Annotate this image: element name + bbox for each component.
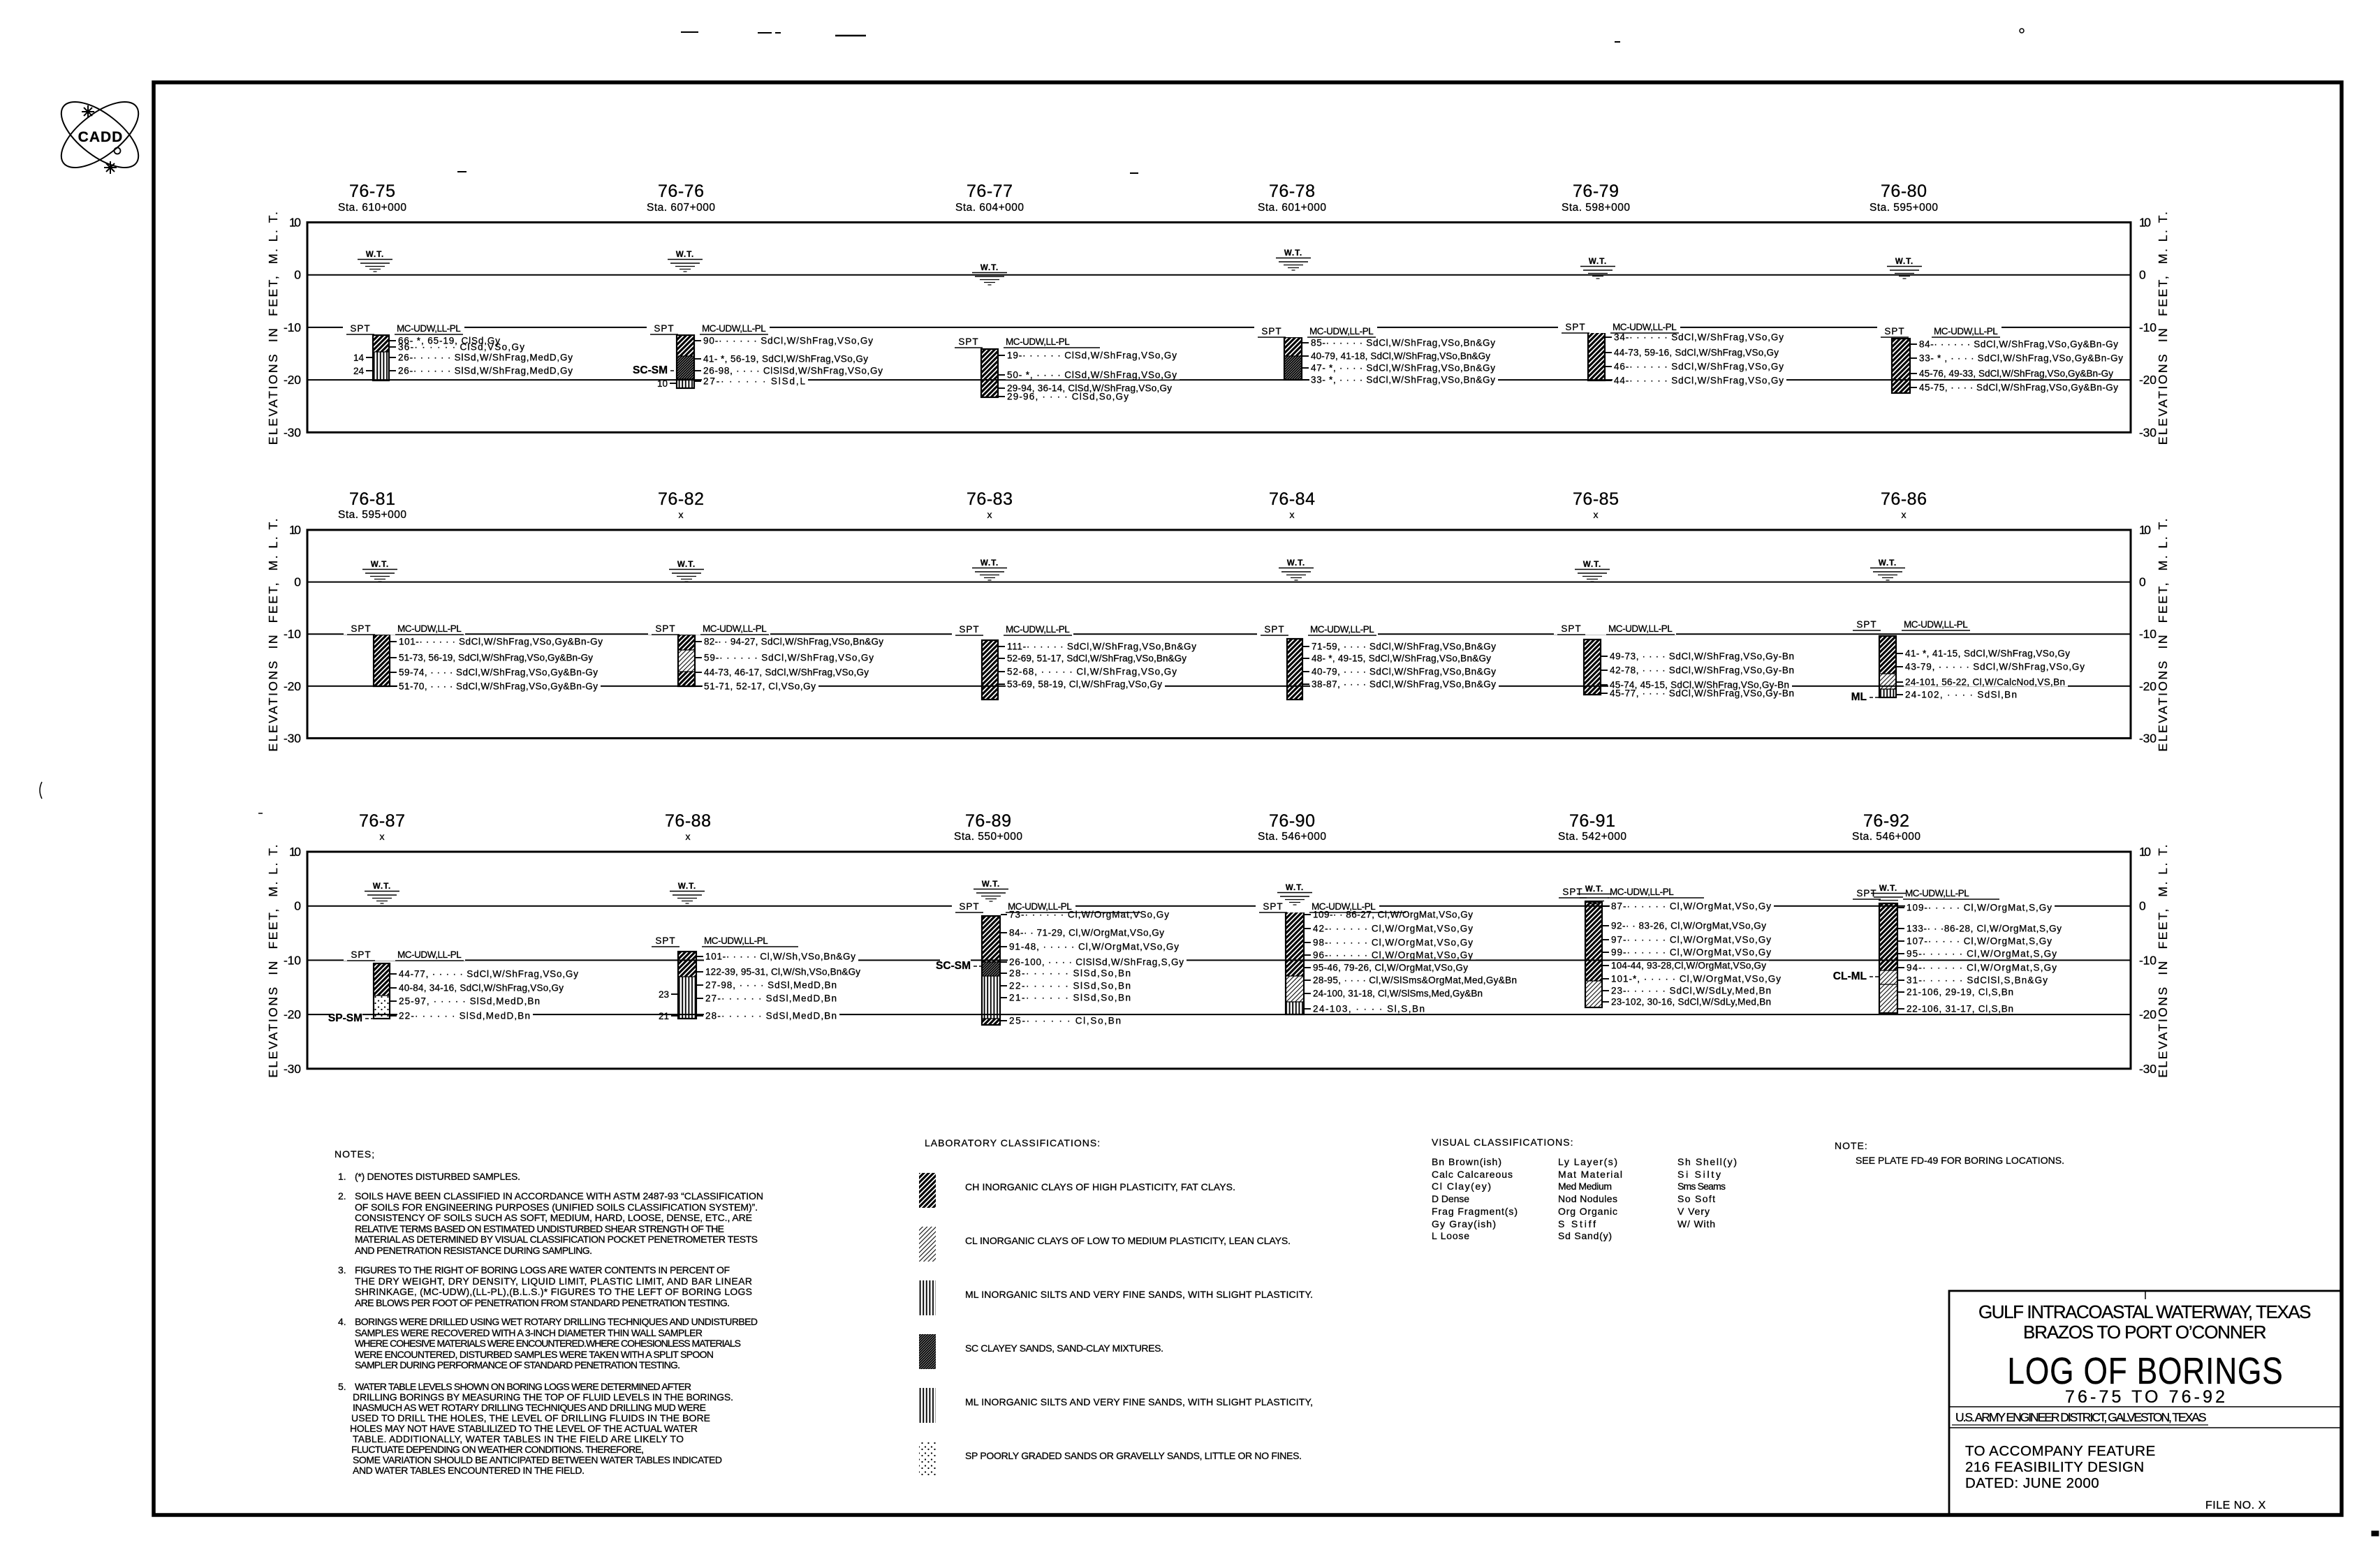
svg-text:W.T.: W.T. bbox=[1287, 559, 1305, 568]
svg-text:W.T.: W.T. bbox=[1589, 258, 1607, 266]
svg-text:TABLE. ADDITIONALLY, WATER TAB: TABLE. ADDITIONALLY, WATER TABLES IN THE… bbox=[353, 1433, 684, 1444]
svg-text:73-· · · · · · Cl,W/OrgMat,VSo: 73-· · · · · · Cl,W/OrgMat,VSo,Gy bbox=[1009, 910, 1169, 920]
svg-text:BRAZOS TO PORT O’CONNER: BRAZOS TO PORT O’CONNER bbox=[2023, 1322, 2268, 1343]
svg-text:Cl Clay(ey): Cl Clay(ey) bbox=[1432, 1181, 1491, 1192]
svg-text:-30: -30 bbox=[284, 731, 301, 745]
svg-text:SPT: SPT bbox=[959, 901, 979, 912]
svg-text:DATED: JUNE 2000: DATED: JUNE 2000 bbox=[1965, 1475, 2099, 1491]
svg-text:Sms Seams: Sms Seams bbox=[1677, 1181, 1726, 1192]
svg-text:84-· · 71-29, Cl,W/OrgMat,VSo,: 84-· · 71-29, Cl,W/OrgMat,VSo,Gy bbox=[1009, 928, 1164, 938]
svg-text:51-70, · · · · SdCl,W/ShFrag,V: 51-70, · · · · SdCl,W/ShFrag,VSo,Gy&Bn-G… bbox=[399, 681, 598, 692]
svg-text:101-*, · · · · · Cl,W/OrgMat,V: 101-*, · · · · · Cl,W/OrgMat,VSo,Gy bbox=[1611, 974, 1781, 984]
svg-text:ELEVATIONS IN FEET, M. L. T: ELEVATIONS IN FEET, M. L. T. bbox=[266, 210, 280, 445]
svg-text:WHERE COHESIVE MATERIALS WERE: WHERE COHESIVE MATERIALS WERE ENCOUNTERE… bbox=[355, 1338, 741, 1349]
svg-text:76-83: 76-83 bbox=[967, 489, 1013, 509]
svg-text:(*) DENOTES DISTURBED SAMPLES.: (*) DENOTES DISTURBED SAMPLES. bbox=[355, 1171, 520, 1182]
svg-text:21: 21 bbox=[659, 1011, 669, 1021]
svg-text:29-96, · · · · ClSd,So,Gy: 29-96, · · · · ClSd,So,Gy bbox=[1007, 392, 1129, 402]
svg-text:59-74, · · · · SdCl,W/ShFrag,V: 59-74, · · · · SdCl,W/ShFrag,VSo,Gy&Bn-G… bbox=[399, 667, 598, 678]
svg-text:76-80: 76-80 bbox=[1881, 182, 1927, 201]
svg-text:111-· · · · · · SdCl,W/ShFrag,: 111-· · · · · · SdCl,W/ShFrag,VSo,Bn&Gy bbox=[1007, 642, 1196, 652]
svg-text:SPT: SPT bbox=[1264, 624, 1284, 635]
svg-text:96-· · · · · · Cl,W/OrgMat,VSo: 96-· · · · · · Cl,W/OrgMat,VSo,Gy bbox=[1313, 950, 1473, 961]
svg-text:14: 14 bbox=[353, 353, 365, 363]
svg-text:W.T.: W.T. bbox=[1284, 249, 1302, 258]
svg-text:DRILLING BORINGS BY MEASURING: DRILLING BORINGS BY MEASURING THE TOP OF… bbox=[353, 1391, 733, 1403]
svg-text:W.T.: W.T. bbox=[373, 882, 391, 891]
svg-text:0: 0 bbox=[2139, 575, 2146, 589]
svg-text:10: 10 bbox=[289, 523, 301, 537]
svg-text:SOME VARIATION SHOULD BE ANTIC: SOME VARIATION SHOULD BE ANTICIPATED BET… bbox=[353, 1454, 722, 1465]
svg-text:76-85: 76-85 bbox=[1573, 489, 1619, 509]
svg-text:MC-UDW,LL-PL: MC-UDW,LL-PL bbox=[397, 623, 462, 634]
svg-text:76-84: 76-84 bbox=[1269, 489, 1315, 509]
svg-text:SPT: SPT bbox=[655, 623, 675, 634]
svg-text:CH INORGANIC CLAYS OF HIGH PLA: CH INORGANIC CLAYS OF HIGH PLASTICITY, F… bbox=[965, 1181, 1235, 1192]
svg-text:-30: -30 bbox=[284, 1062, 301, 1076]
svg-text:-20: -20 bbox=[2139, 373, 2157, 387]
svg-text:44-77, · · · · · SdCl,W/ShFrag: 44-77, · · · · · SdCl,W/ShFrag,VSo,Gy bbox=[399, 969, 578, 980]
svg-text:31-· · · · · · SdClSl,S,Bn&Gy: 31-· · · · · · SdClSl,S,Bn&Gy bbox=[1907, 975, 2048, 986]
svg-text:87-· · · · · · Cl,W/OrgMat,VSo: 87-· · · · · · Cl,W/OrgMat,VSo,Gy bbox=[1611, 901, 1771, 912]
svg-text:MC-UDW,LL-PL: MC-UDW,LL-PL bbox=[397, 323, 461, 334]
svg-text:0: 0 bbox=[294, 575, 301, 589]
svg-text:ML INORGANIC SILTS AND VERY FI: ML INORGANIC SILTS AND VERY FINE SANDS, … bbox=[965, 1289, 1313, 1300]
svg-text:Sta. 550+000: Sta. 550+000 bbox=[954, 831, 1022, 843]
svg-text:-30: -30 bbox=[2139, 731, 2157, 745]
svg-text:SPT: SPT bbox=[655, 936, 675, 946]
svg-text:MATERIAL AS DETERMINED BY VISU: MATERIAL AS DETERMINED BY VISUAL CLASSIF… bbox=[355, 1234, 758, 1245]
svg-text:SPT: SPT bbox=[958, 337, 978, 347]
svg-text:NOTES;: NOTES; bbox=[335, 1148, 375, 1160]
svg-text:45-76, 49-33, SdCl,W/ShFrag,VS: 45-76, 49-33, SdCl,W/ShFrag,VSo,Gy&Bn-Gy bbox=[1919, 369, 2113, 379]
svg-text:SPT: SPT bbox=[1884, 326, 1904, 337]
svg-text:SHRINKAGE, (MC-UDW),(LL-PL),(B: SHRINKAGE, (MC-UDW),(LL-PL),(B.L.S.)* FI… bbox=[355, 1286, 752, 1297]
svg-text:76-82: 76-82 bbox=[658, 489, 704, 509]
svg-text:41- *, 56-19, SdCl,W/ShFrag,VS: 41- *, 56-19, SdCl,W/ShFrag,VSo,Gy bbox=[703, 354, 868, 364]
svg-text:19-· · · · · · ClSd,W/ShFrag,V: 19-· · · · · · ClSd,W/ShFrag,VSo,Gy bbox=[1007, 350, 1177, 361]
svg-text:0: 0 bbox=[294, 268, 301, 282]
svg-text:23-· · · · · · SdCl,W/SdLy,Med: 23-· · · · · · SdCl,W/SdLy,Med,Bn bbox=[1611, 986, 1771, 996]
svg-text:Frag Fragment(s): Frag Fragment(s) bbox=[1432, 1206, 1518, 1217]
svg-text:So Soft: So Soft bbox=[1677, 1193, 1715, 1204]
svg-text:U.S. ARMY ENGINEER DISTRICT, G: U.S. ARMY ENGINEER DISTRICT, GALVESTON, … bbox=[1955, 1410, 2207, 1424]
svg-text:SAMPLES WERE RECOVERED WITH A: SAMPLES WERE RECOVERED WITH A 3-INCH DIA… bbox=[355, 1327, 703, 1338]
svg-text:51-71, 52-17, Cl,VSo,Gy: 51-71, 52-17, Cl,VSo,Gy bbox=[704, 681, 816, 692]
svg-text:26-· · · · · · SlSd,W/ShFrag,M: 26-· · · · · · SlSd,W/ShFrag,MedD,Gy bbox=[398, 353, 573, 363]
svg-text:109-· · · · · Cl,W/OrgMat,S,Gy: 109-· · · · · Cl,W/OrgMat,S,Gy bbox=[1907, 903, 2052, 913]
svg-text:WATER TABLE LEVELS SHOWN ON BO: WATER TABLE LEVELS SHOWN ON BORING LOGS … bbox=[355, 1381, 691, 1392]
svg-text:WERE ENCOUNTERED, DISTURBED SA: WERE ENCOUNTERED, DISTURBED SAMPLES WERE… bbox=[355, 1349, 714, 1360]
svg-text:SC-SM: SC-SM bbox=[936, 960, 971, 972]
svg-text:36-· · · · · · ClSd,VSo,Gy: 36-· · · · · · ClSd,VSo,Gy bbox=[398, 342, 524, 353]
svg-text:22-· · · · · · SlSd,So,Bn: 22-· · · · · · SlSd,So,Bn bbox=[1009, 981, 1131, 991]
svg-text:SPT: SPT bbox=[654, 323, 674, 334]
svg-text:x: x bbox=[679, 509, 684, 520]
svg-text:10: 10 bbox=[289, 216, 301, 230]
svg-text:52-68, · · · · · Cl,W/ShFrag,V: 52-68, · · · · · Cl,W/ShFrag,VSo,Gy bbox=[1007, 667, 1177, 677]
svg-text:41- *, 41-15, SdCl,W/ShFrag,VS: 41- *, 41-15, SdCl,W/ShFrag,VSo,Gy bbox=[1905, 649, 2070, 659]
svg-text:76-79: 76-79 bbox=[1573, 182, 1619, 201]
svg-text:-20: -20 bbox=[2139, 679, 2157, 693]
svg-text:21-· · · · · · SlSd,So,Bn: 21-· · · · · · SlSd,So,Bn bbox=[1009, 993, 1131, 1003]
svg-text:MC-UDW,LL-PL: MC-UDW,LL-PL bbox=[1608, 623, 1673, 634]
svg-text:-10: -10 bbox=[284, 627, 301, 641]
svg-text:x: x bbox=[1902, 509, 1907, 520]
svg-text:33- * , · · · · SdCl,W/ShFrag,: 33- * , · · · · SdCl,W/ShFrag,VSo,Gy&Bn-… bbox=[1919, 353, 2123, 364]
svg-text:SAMPLER DURING PERFORMANCE OF: SAMPLER DURING PERFORMANCE OF STANDARD P… bbox=[355, 1359, 680, 1370]
svg-text:D Dense: D Dense bbox=[1432, 1193, 1469, 1204]
svg-text:0: 0 bbox=[2139, 268, 2146, 282]
svg-text:THE DRY WEIGHT, DRY DENSITY, L: THE DRY WEIGHT, DRY DENSITY, LIQUID LIMI… bbox=[355, 1276, 752, 1287]
svg-text:MC-UDW,LL-PL: MC-UDW,LL-PL bbox=[1310, 624, 1374, 635]
svg-text:Sta. 546+000: Sta. 546+000 bbox=[1258, 831, 1326, 843]
svg-text:MC-UDW,LL-PL: MC-UDW,LL-PL bbox=[1934, 326, 1998, 337]
svg-text:W.T.: W.T. bbox=[1895, 258, 1913, 266]
svg-text:10: 10 bbox=[2139, 523, 2151, 537]
svg-text:W.T.: W.T. bbox=[982, 880, 1000, 889]
svg-text:SPT: SPT bbox=[351, 949, 371, 960]
svg-text:24-101, 56-22, Cl,W/CalcNod,VS: 24-101, 56-22, Cl,W/CalcNod,VS,Bn bbox=[1905, 677, 2065, 688]
svg-text:76-87: 76-87 bbox=[359, 811, 405, 831]
svg-text:Sta. 595+000: Sta. 595+000 bbox=[1870, 202, 1938, 214]
svg-text:-20: -20 bbox=[284, 679, 301, 693]
svg-text:ELEVATIONS IN FEET, M. L. T: ELEVATIONS IN FEET, M. L. T. bbox=[2156, 843, 2170, 1078]
svg-text:33- *, · · · · SdCl,W/ShFrag,V: 33- *, · · · · SdCl,W/ShFrag,VSo,Bn&Gy bbox=[1311, 375, 1495, 385]
svg-text:W.T.: W.T. bbox=[1286, 884, 1304, 892]
svg-text:W.T.: W.T. bbox=[980, 559, 999, 568]
svg-text:23-102, 30-16, SdCl,W/SdLy,Med: 23-102, 30-16, SdCl,W/SdLy,Med,Bn bbox=[1611, 997, 1771, 1007]
svg-text:-10: -10 bbox=[284, 953, 301, 967]
svg-text:W.T.: W.T. bbox=[1879, 559, 1897, 568]
svg-text:x: x bbox=[987, 509, 992, 520]
svg-text:22-· · · · · · SlSd,MedD,Bn: 22-· · · · · · SlSd,MedD,Bn bbox=[399, 1011, 530, 1021]
svg-text:94-· · · · · · Cl,W/OrgMat,S,G: 94-· · · · · · Cl,W/OrgMat,S,Gy bbox=[1907, 963, 2057, 973]
svg-text:76-89: 76-89 bbox=[965, 811, 1011, 831]
svg-text:CONSISTENCY OF SOILS SUCH AS S: CONSISTENCY OF SOILS SUCH AS SOFT, MEDIU… bbox=[355, 1212, 752, 1223]
svg-text:SOILS HAVE BEEN CLASSIFIED IN: SOILS HAVE BEEN CLASSIFIED IN ACCORDANCE… bbox=[355, 1190, 763, 1202]
svg-text:x: x bbox=[380, 831, 385, 842]
svg-text:76-90: 76-90 bbox=[1269, 811, 1315, 831]
svg-text:104-44, 93-28,Cl,W/OrgMat,VSo,: 104-44, 93-28,Cl,W/OrgMat,VSo,Gy bbox=[1611, 961, 1766, 971]
svg-text:21-106, 29-19, Cl,S,Bn: 21-106, 29-19, Cl,S,Bn bbox=[1907, 987, 2013, 998]
svg-text:W.T.: W.T. bbox=[366, 251, 384, 259]
svg-text:ARE BLOWS PER FOOT OF PENETRAT: ARE BLOWS PER FOOT OF PENETRATION FROM S… bbox=[355, 1297, 730, 1308]
svg-text:SC CLAYEY SANDS, SAND-CLAY MIX: SC CLAYEY SANDS, SAND-CLAY MIXTURES. bbox=[965, 1343, 1163, 1354]
svg-text:RELATIVE TERMS BASED ON ESTIMA: RELATIVE TERMS BASED ON ESTIMATED UNDIST… bbox=[355, 1223, 724, 1234]
svg-text:Bn Brown(ish): Bn Brown(ish) bbox=[1432, 1156, 1501, 1167]
svg-text:Sta. 607+000: Sta. 607+000 bbox=[647, 202, 715, 214]
svg-text:-30: -30 bbox=[2139, 1062, 2157, 1076]
svg-text:10: 10 bbox=[657, 378, 668, 389]
svg-text:Sd Sand(y): Sd Sand(y) bbox=[1558, 1230, 1612, 1241]
svg-text:Nod Nodules: Nod Nodules bbox=[1558, 1193, 1617, 1204]
svg-text:122-39, 95-31, Cl,W/Sh,VSo,Bn&: 122-39, 95-31, Cl,W/Sh,VSo,Bn&Gy bbox=[705, 967, 860, 977]
svg-text:53-69, 58-19, Cl,W/ShFrag,VSo,: 53-69, 58-19, Cl,W/ShFrag,VSo,Gy bbox=[1007, 679, 1162, 690]
svg-text:0: 0 bbox=[294, 899, 301, 913]
svg-text:Sh Shell(y): Sh Shell(y) bbox=[1677, 1156, 1737, 1167]
svg-text:27-· · · · · · SdSl,MedD,Bn: 27-· · · · · · SdSl,MedD,Bn bbox=[705, 993, 837, 1004]
svg-text:2.: 2. bbox=[338, 1190, 346, 1202]
svg-text:W.T.: W.T. bbox=[676, 251, 694, 259]
svg-text:VISUAL CLASSIFICATIONS:: VISUAL CLASSIFICATIONS: bbox=[1432, 1137, 1574, 1148]
svg-text:76-77: 76-77 bbox=[967, 182, 1013, 201]
svg-text:ML: ML bbox=[1851, 691, 1867, 703]
svg-text:-10: -10 bbox=[2139, 320, 2157, 334]
svg-text:109-· · 86-27, Cl,W/OrgMat,VSo: 109-· · 86-27, Cl,W/OrgMat,VSo,Gy bbox=[1313, 910, 1473, 920]
svg-text:42-· · · · · · Cl,W/OrgMat,VSo: 42-· · · · · · Cl,W/OrgMat,VSo,Gy bbox=[1313, 924, 1473, 934]
svg-text:26-· · · · · · SlSd,W/ShFrag,M: 26-· · · · · · SlSd,W/ShFrag,MedD,Gy bbox=[398, 366, 573, 376]
svg-text:MC-UDW,LL-PL: MC-UDW,LL-PL bbox=[1309, 326, 1374, 337]
svg-text:107-· · · · · Cl,W/OrgMat,S,Gy: 107-· · · · · Cl,W/OrgMat,S,Gy bbox=[1907, 936, 2052, 947]
svg-text:Sta. 601+000: Sta. 601+000 bbox=[1258, 202, 1326, 214]
svg-text:W.T.: W.T. bbox=[980, 264, 999, 272]
svg-text:42-78, · · · · SdCl,W/ShFrag,V: 42-78, · · · · SdCl,W/ShFrag,VSo,Gy-Bn bbox=[1610, 665, 1794, 676]
svg-text:GULF INTRACOASTAL WATERWAY, TE: GULF INTRACOASTAL WATERWAY, TEXAS bbox=[1978, 1301, 2312, 1322]
svg-text:MC-UDW,LL-PL: MC-UDW,LL-PL bbox=[1610, 887, 1674, 897]
svg-text:INASMUCH AS WET ROTARY DRILLIN: INASMUCH AS WET ROTARY DRILLING TECHNIQU… bbox=[353, 1402, 706, 1413]
svg-text:45-75, · · · · SdCl,W/ShFrag,V: 45-75, · · · · SdCl,W/ShFrag,VSo,Gy&Bn-G… bbox=[1919, 383, 2118, 393]
svg-text:76-76: 76-76 bbox=[658, 182, 704, 201]
svg-text:-20: -20 bbox=[2139, 1007, 2157, 1021]
svg-text:MC-UDW,LL-PL: MC-UDW,LL-PL bbox=[704, 936, 768, 946]
svg-text:45-77, · · · · SdCl,W/ShFrag,V: 45-77, · · · · SdCl,W/ShFrag,VSo,Gy-Bn bbox=[1610, 688, 1794, 699]
svg-text:SPT: SPT bbox=[1562, 887, 1582, 897]
svg-text:x: x bbox=[1290, 509, 1295, 520]
svg-text:TO ACCOMPANY FEATURE: TO ACCOMPANY FEATURE bbox=[1965, 1443, 2156, 1459]
svg-text:76-92: 76-92 bbox=[1863, 811, 1909, 831]
svg-text:101-· · · · · Cl,W/Sh,VSo,Bn&G: 101-· · · · · Cl,W/Sh,VSo,Bn&Gy bbox=[705, 952, 855, 962]
svg-text:-10: -10 bbox=[2139, 953, 2157, 967]
svg-text:W.T.: W.T. bbox=[371, 561, 389, 569]
svg-text:HOLES MAY NOT HAVE STABLILIZED: HOLES MAY NOT HAVE STABLILIZED TO THE LE… bbox=[350, 1423, 698, 1434]
svg-text:MC-UDW,LL-PL: MC-UDW,LL-PL bbox=[703, 623, 767, 634]
svg-text:49-73, · · · · SdCl,W/ShFrag,V: 49-73, · · · · SdCl,W/ShFrag,VSo,Gy-Bn bbox=[1610, 651, 1794, 662]
svg-text:Med Medium: Med Medium bbox=[1558, 1181, 1612, 1192]
svg-text:46-· · · · · · SdCl,W/ShFrag,V: 46-· · · · · · SdCl,W/ShFrag,VSo,Gy bbox=[1614, 362, 1784, 372]
svg-text:-30: -30 bbox=[2139, 425, 2157, 439]
svg-text:26-100, · · · · ClSlSd,W/ShFra: 26-100, · · · · ClSlSd,W/ShFrag,S,Gy bbox=[1009, 957, 1184, 968]
svg-text:MC-UDW,LL-PL: MC-UDW,LL-PL bbox=[397, 949, 462, 960]
svg-text:3.: 3. bbox=[338, 1264, 346, 1276]
svg-text:-20: -20 bbox=[284, 1007, 301, 1021]
svg-text:SPT: SPT bbox=[1263, 901, 1283, 912]
svg-text:AND PENETRATION RESISTANCE DUR: AND PENETRATION RESISTANCE DURING SAMPLI… bbox=[355, 1245, 592, 1256]
svg-text:LOG OF BORINGS: LOG OF BORINGS bbox=[2007, 1350, 2283, 1392]
svg-text:Calc Calcareous: Calc Calcareous bbox=[1432, 1169, 1513, 1180]
svg-text:95-· · · · · · Cl,W/OrgMat,S,G: 95-· · · · · · Cl,W/OrgMat,S,Gy bbox=[1907, 949, 2057, 959]
svg-text:43-79, · · · · · SdCl,W/ShFrag: 43-79, · · · · · SdCl,W/ShFrag,VSo,Gy bbox=[1905, 662, 2085, 672]
svg-text:76-86: 76-86 bbox=[1881, 489, 1927, 509]
svg-text:SP-SM: SP-SM bbox=[328, 1012, 362, 1024]
svg-text:ML INORGANIC SILTS AND VERY FI: ML INORGANIC SILTS AND VERY FINE SANDS, … bbox=[965, 1396, 1313, 1407]
svg-text:23: 23 bbox=[659, 989, 669, 1000]
svg-text:133-· · ·86-28, Cl,W/OrgMat,S,: 133-· · ·86-28, Cl,W/OrgMat,S,Gy bbox=[1907, 924, 2062, 934]
svg-text:40-79, · · · · SdCl,W/ShFrag,V: 40-79, · · · · SdCl,W/ShFrag,VSo,Bn&Gy bbox=[1312, 667, 1496, 677]
svg-text:10: 10 bbox=[289, 845, 301, 859]
svg-text:MC-UDW,LL-PL: MC-UDW,LL-PL bbox=[1904, 619, 1968, 630]
svg-text:98-· · · · · · Cl,W/OrgMat,VSo: 98-· · · · · · Cl,W/OrgMat,VSo,Gy bbox=[1313, 938, 1473, 948]
svg-text:W.T.: W.T. bbox=[677, 561, 696, 569]
svg-text:Sta. 598+000: Sta. 598+000 bbox=[1562, 202, 1630, 214]
svg-text:Sta. 604+000: Sta. 604+000 bbox=[955, 202, 1024, 214]
svg-text:S Stiff: S Stiff bbox=[1558, 1218, 1596, 1229]
svg-text:71-59, · · · · SdCl,W/ShFrag,V: 71-59, · · · · SdCl,W/ShFrag,VSo,Bn&Gy bbox=[1312, 642, 1496, 652]
svg-text:L Loose: L Loose bbox=[1432, 1230, 1469, 1241]
svg-text:Sta. 610+000: Sta. 610+000 bbox=[338, 202, 406, 214]
svg-text:51-73, 56-19, SdCl,W/ShFrag,VS: 51-73, 56-19, SdCl,W/ShFrag,VSo,Gy&Bn-Gy bbox=[399, 653, 593, 663]
svg-text:28-95, · · · · Cl,W/SlSms&OrgM: 28-95, · · · · Cl,W/SlSms&OrgMat,Med,Gy&… bbox=[1313, 975, 1517, 986]
svg-text:99-· · · · · · Cl,W/OrgMat,VSo: 99-· · · · · · Cl,W/OrgMat,VSo,Gy bbox=[1611, 947, 1771, 958]
svg-text:SPT: SPT bbox=[959, 624, 979, 635]
svg-text:BORINGS WERE DRILLED USING WET: BORINGS WERE DRILLED USING WET ROTARY DR… bbox=[355, 1316, 758, 1327]
svg-text:76-88: 76-88 bbox=[665, 811, 711, 831]
svg-text:-10: -10 bbox=[2139, 627, 2157, 641]
svg-text:CL INORGANIC CLAYS OF LOW TO M: CL INORGANIC CLAYS OF LOW TO MEDIUM PLAS… bbox=[965, 1235, 1291, 1246]
svg-text:85-· · · · · · SdCl,W/ShFrag,V: 85-· · · · · · SdCl,W/ShFrag,VSo,Bn&Gy bbox=[1311, 338, 1495, 348]
svg-text:76-75: 76-75 bbox=[349, 182, 395, 201]
svg-text:27-· · · · · · SlSd,L: 27-· · · · · · SlSd,L bbox=[703, 376, 805, 387]
svg-text:SPT: SPT bbox=[351, 623, 371, 634]
svg-text:LABORATORY CLASSIFICATIONS:: LABORATORY CLASSIFICATIONS: bbox=[925, 1137, 1101, 1148]
svg-text:47- *, · · · · SdCl,W/ShFrag,V: 47- *, · · · · SdCl,W/ShFrag,VSo,Bn&Gy bbox=[1311, 363, 1495, 374]
svg-text:Sta. 595+000: Sta. 595+000 bbox=[338, 509, 406, 521]
svg-text:24: 24 bbox=[353, 366, 365, 376]
svg-text:-10: -10 bbox=[284, 320, 301, 334]
svg-text:95-46, 79-26, Cl,W/OrgMat,VSo,: 95-46, 79-26, Cl,W/OrgMat,VSo,Gy bbox=[1313, 963, 1468, 973]
svg-text:59-· · · · · · SdCl,W/ShFrag,V: 59-· · · · · · SdCl,W/ShFrag,VSo,Gy bbox=[704, 653, 874, 663]
svg-text:48- *, 49-15, SdCl,W/ShFrag,VS: 48- *, 49-15, SdCl,W/ShFrag,VSo,Bn&Gy bbox=[1312, 653, 1491, 664]
svg-text:22-106, 31-17, Cl,S,Bn: 22-106, 31-17, Cl,S,Bn bbox=[1907, 1004, 2013, 1014]
svg-text:ELEVATIONS IN FEET, M. L. T: ELEVATIONS IN FEET, M. L. T. bbox=[266, 843, 280, 1078]
svg-text:-20: -20 bbox=[284, 373, 301, 387]
svg-text:W.T.: W.T. bbox=[1585, 885, 1603, 894]
svg-text:SPT: SPT bbox=[1856, 619, 1876, 630]
svg-text:Org Organic: Org Organic bbox=[1558, 1206, 1617, 1217]
svg-text:W.T.: W.T. bbox=[678, 882, 696, 891]
svg-text:40-79, 41-18, SdCl,W/ShFrag,VS: 40-79, 41-18, SdCl,W/ShFrag,VSo,Bn&Gy bbox=[1311, 351, 1490, 362]
svg-text:28-· · · · · · SdSl,MedD,Bn: 28-· · · · · · SdSl,MedD,Bn bbox=[705, 1011, 837, 1021]
svg-text:SPT: SPT bbox=[1261, 326, 1281, 337]
svg-text:ELEVATIONS IN FEET, M. L. T: ELEVATIONS IN FEET, M. L. T. bbox=[266, 517, 280, 751]
svg-text:92-· · 83-26, Cl,W/OrgMat,VSo,: 92-· · 83-26, Cl,W/OrgMat,VSo,Gy bbox=[1611, 921, 1766, 931]
svg-text:1.: 1. bbox=[338, 1171, 346, 1182]
svg-text:FIGURES TO THE RIGHT OF BORING: FIGURES TO THE RIGHT OF BORING LOGS ARE … bbox=[355, 1264, 730, 1276]
svg-text:76-78: 76-78 bbox=[1269, 182, 1315, 201]
svg-text:MC-UDW,LL-PL: MC-UDW,LL-PL bbox=[1006, 624, 1070, 635]
svg-text:CADD: CADD bbox=[78, 129, 124, 145]
svg-text:MC-UDW,LL-PL: MC-UDW,LL-PL bbox=[702, 323, 766, 334]
svg-text:FILE NO. X: FILE NO. X bbox=[2205, 1500, 2266, 1511]
svg-text:44-· · · · · · SdCl,W/ShFrag,V: 44-· · · · · · SdCl,W/ShFrag,VSo,Gy bbox=[1614, 376, 1784, 386]
svg-text:97-· · · · · · Cl,W/OrgMat,VSo: 97-· · · · · · Cl,W/OrgMat,VSo,Gy bbox=[1611, 935, 1771, 945]
svg-text:44-73, 59-16, SdCl,W/ShFrag,VS: 44-73, 59-16, SdCl,W/ShFrag,VSo,Gy bbox=[1614, 348, 1779, 358]
svg-text:SEE PLATE FD-49 FOR BORING LOC: SEE PLATE FD-49 FOR BORING LOCATIONS. bbox=[1856, 1155, 2064, 1166]
svg-text:x: x bbox=[1594, 509, 1599, 520]
svg-text:OF SOILS FOR ENGINEERING PURPO: OF SOILS FOR ENGINEERING PURPOSES (UNIFI… bbox=[355, 1202, 758, 1213]
svg-text:SC-SM: SC-SM bbox=[633, 364, 668, 376]
svg-text:W.T.: W.T. bbox=[1583, 561, 1601, 569]
svg-text:0: 0 bbox=[2139, 899, 2146, 913]
svg-text:Ly Layer(s): Ly Layer(s) bbox=[1558, 1156, 1617, 1167]
svg-text:25-· · · · · · Cl,So,Bn: 25-· · · · · · Cl,So,Bn bbox=[1009, 1016, 1121, 1026]
svg-text:ELEVATIONS IN FEET, M. L. T: ELEVATIONS IN FEET, M. L. T. bbox=[2156, 210, 2170, 445]
svg-text:SPT: SPT bbox=[350, 323, 370, 334]
svg-text:101-· · · · · · SdCl,W/ShFrag,: 101-· · · · · · SdCl,W/ShFrag,VSo,Gy&Bn-… bbox=[399, 637, 603, 647]
svg-text:26-98, · · · · ClSlSd,W/ShFrag: 26-98, · · · · ClSlSd,W/ShFrag,VSo,Gy bbox=[703, 366, 883, 376]
svg-text:W/ With: W/ With bbox=[1677, 1218, 1715, 1229]
svg-text:34-· · · · · · SdCl,W/ShFrag,V: 34-· · · · · · SdCl,W/ShFrag,VSo,Gy bbox=[1614, 332, 1784, 343]
svg-text:4.: 4. bbox=[338, 1316, 346, 1327]
svg-text:Mat Material: Mat Material bbox=[1558, 1169, 1622, 1180]
svg-text:24-100, 31-18, Cl,W/SlSms,Med,: 24-100, 31-18, Cl,W/SlSms,Med,Gy&Bn bbox=[1313, 989, 1483, 999]
svg-text:V Very: V Very bbox=[1677, 1206, 1710, 1217]
svg-text:28-· · · · · · SlSd,So,Bn: 28-· · · · · · SlSd,So,Bn bbox=[1009, 968, 1131, 979]
svg-text:x: x bbox=[686, 831, 691, 842]
svg-text:90-· · · · · · SdCl,W/ShFrag,V: 90-· · · · · · SdCl,W/ShFrag,VSo,Gy bbox=[703, 336, 873, 346]
svg-text:24-103, · · · · Sl,S,Bn: 24-103, · · · · Sl,S,Bn bbox=[1313, 1004, 1425, 1014]
svg-text:-30: -30 bbox=[284, 425, 301, 439]
svg-text:5.: 5. bbox=[338, 1381, 346, 1392]
svg-text:NOTE:: NOTE: bbox=[1835, 1140, 1868, 1151]
svg-text:50- *, · · · · ClSd,W/ShFrag,V: 50- *, · · · · ClSd,W/ShFrag,VSo,Gy bbox=[1007, 370, 1177, 380]
svg-text:38-87, · · · · SdCl,W/ShFrag,V: 38-87, · · · · SdCl,W/ShFrag,VSo,Bn&Gy bbox=[1312, 679, 1496, 690]
svg-text:Gy Gray(ish): Gy Gray(ish) bbox=[1432, 1218, 1496, 1229]
svg-text:ELEVATIONS IN FEET, M. L. T: ELEVATIONS IN FEET, M. L. T. bbox=[2156, 517, 2170, 751]
svg-text:40-84, 34-16, SdCl,W/ShFrag,VS: 40-84, 34-16, SdCl,W/ShFrag,VSo,Gy bbox=[399, 983, 564, 993]
svg-text:MC-UDW,LL-PL: MC-UDW,LL-PL bbox=[1905, 888, 1969, 899]
svg-text:10: 10 bbox=[2139, 216, 2151, 230]
svg-text:27-98, · · · · SdSl,MedD,Bn: 27-98, · · · · SdSl,MedD,Bn bbox=[705, 980, 837, 991]
svg-text:76-91: 76-91 bbox=[1569, 811, 1615, 831]
svg-text:76-81: 76-81 bbox=[349, 489, 395, 509]
svg-text:W.T.: W.T. bbox=[1879, 885, 1897, 893]
svg-text:Sta. 546+000: Sta. 546+000 bbox=[1852, 831, 1920, 843]
svg-text:MC-UDW,LL-PL: MC-UDW,LL-PL bbox=[1006, 337, 1070, 347]
svg-text:USED TO DRILL THE HOLES, THE L: USED TO DRILL THE HOLES, THE LEVEL OF DR… bbox=[351, 1412, 710, 1424]
svg-text:SPT: SPT bbox=[1561, 623, 1581, 634]
svg-text:FLUCTUATE DEPENDING ON WEATHER: FLUCTUATE DEPENDING ON WEATHER CONDITION… bbox=[351, 1444, 644, 1455]
svg-text:82-· · 94-27, SdCl,W/ShFrag,VS: 82-· · 94-27, SdCl,W/ShFrag,VSo,Bn&Gy bbox=[704, 637, 883, 647]
svg-text:SP POORLY GRADED SANDS OR GRAV: SP POORLY GRADED SANDS OR GRAVELLY SANDS… bbox=[965, 1450, 1302, 1461]
svg-text:216 FEASIBILITY DESIGN: 216 FEASIBILITY DESIGN bbox=[1965, 1459, 2145, 1475]
svg-text:84-· · · · · · SdCl,W/ShFrag,V: 84-· · · · · · SdCl,W/ShFrag,VSo,Gy&Bn-G… bbox=[1919, 339, 2118, 350]
svg-text:CL-ML: CL-ML bbox=[1833, 970, 1867, 982]
svg-text:10: 10 bbox=[2139, 845, 2151, 859]
svg-text:44-73, 46-17, SdCl,W/ShFrag,VS: 44-73, 46-17, SdCl,W/ShFrag,VSo,Gy bbox=[704, 667, 869, 678]
svg-text:52-69, 51-17, SdCl,W/ShFrag,VS: 52-69, 51-17, SdCl,W/ShFrag,VSo,Bn&Gy bbox=[1007, 653, 1187, 664]
svg-text:MC-UDW,LL-PL: MC-UDW,LL-PL bbox=[1613, 322, 1677, 332]
svg-text:AND WATER TABLES ENCOUNTERED I: AND WATER TABLES ENCOUNTERED IN THE FIEL… bbox=[353, 1465, 585, 1476]
svg-text:91-48, · · · · · Cl,W/OrgMat,V: 91-48, · · · · · Cl,W/OrgMat,VSo,Gy bbox=[1009, 942, 1179, 952]
svg-text:SPT: SPT bbox=[1565, 322, 1585, 332]
svg-text:Sta. 542+000: Sta. 542+000 bbox=[1558, 831, 1626, 843]
